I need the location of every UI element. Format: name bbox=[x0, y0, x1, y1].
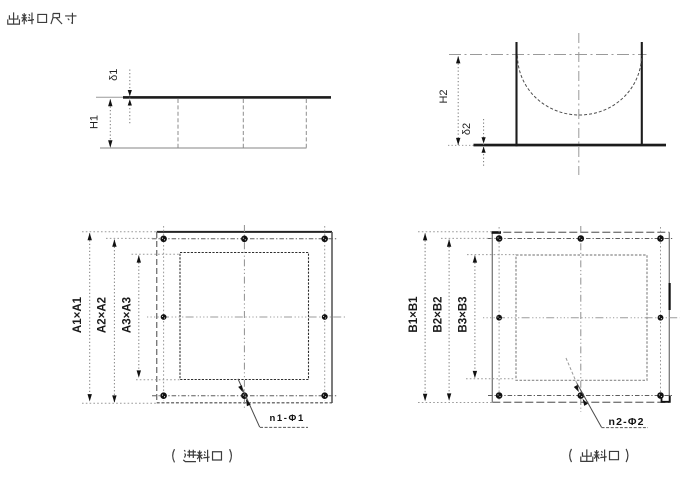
svg-text:δ1: δ1 bbox=[108, 69, 120, 81]
svg-text:A3×A3: A3×A3 bbox=[122, 297, 134, 333]
svg-text:B3×B3: B3×B3 bbox=[457, 296, 469, 332]
svg-text:n2-Φ2: n2-Φ2 bbox=[609, 416, 645, 428]
svg-text:A1×A1: A1×A1 bbox=[72, 296, 84, 333]
svg-text:δ2: δ2 bbox=[461, 123, 473, 135]
svg-text:B1×B1: B1×B1 bbox=[408, 296, 420, 333]
svg-text:H2: H2 bbox=[438, 89, 450, 103]
svg-text:A2×A2: A2×A2 bbox=[96, 297, 108, 333]
svg-text:B2×B2: B2×B2 bbox=[432, 296, 444, 332]
svg-text:n1-Φ1: n1-Φ1 bbox=[270, 413, 305, 424]
svg-text:H1: H1 bbox=[89, 115, 101, 129]
